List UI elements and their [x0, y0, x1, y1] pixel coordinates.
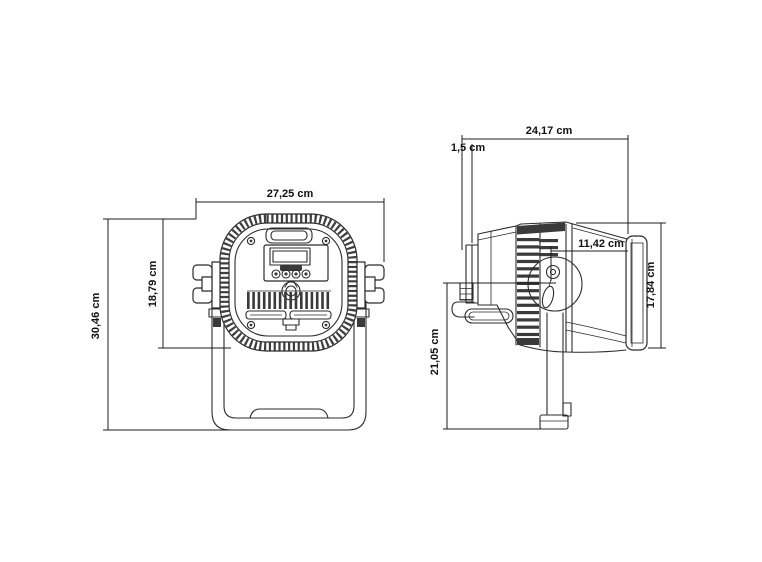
dim-front-section: 11,42 cm — [551, 238, 628, 281]
lcd-label — [280, 265, 302, 271]
front-lens-plate — [626, 236, 647, 350]
pivot-knob — [547, 266, 560, 279]
dim-front-total-height-label: 30,46 cm — [90, 293, 102, 340]
dimension-drawing: 27,25 cm 30,46 cm 18,79 cm — [0, 0, 762, 562]
dim-side-depth-label: 24,17 cm — [526, 125, 573, 137]
front-view — [193, 214, 384, 430]
rear-handle — [465, 309, 513, 323]
dim-front-height-label: 17,84 cm — [645, 262, 657, 309]
dim-front-body-height-label: 18,79 cm — [147, 261, 159, 308]
dim-rear-offset: 1,5 cm — [451, 142, 485, 154]
dim-front-total-height: 30,46 cm — [90, 219, 230, 430]
dim-front-section-label: 11,42 cm — [578, 238, 624, 250]
right-mounting-knob — [357, 262, 384, 308]
yoke-foot — [540, 415, 568, 429]
heatsink-fins-side — [517, 238, 558, 345]
dim-front-width-label: 27,25 cm — [267, 188, 314, 200]
technical-drawing-canvas: 27,25 cm 30,46 cm 18,79 cm — [0, 0, 762, 562]
left-mounting-knob — [193, 262, 220, 308]
dim-rear-offset-label: 1,5 cm — [451, 142, 485, 154]
clamp-lever — [540, 285, 555, 309]
side-view — [452, 222, 647, 429]
dim-bracket-height-label: 21,05 cm — [429, 329, 441, 376]
display-panel — [264, 245, 328, 281]
